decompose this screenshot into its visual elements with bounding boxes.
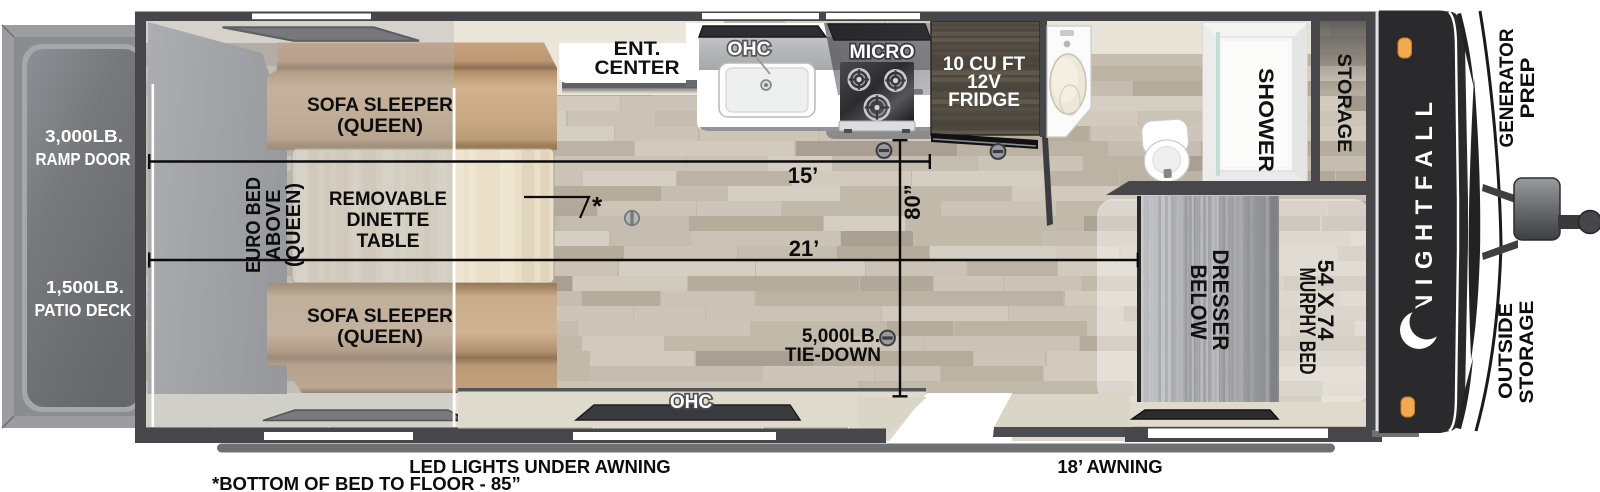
svg-text:OHC: OHC <box>670 392 713 413</box>
svg-text:*BOTTOM OF BED TO FLOOR - 85”: *BOTTOM OF BED TO FLOOR - 85” <box>212 473 521 492</box>
svg-text:21’: 21’ <box>789 236 820 261</box>
svg-text:TABLE: TABLE <box>357 231 420 252</box>
svg-text:FRIDGE: FRIDGE <box>948 90 1020 111</box>
svg-text:OUTSIDE: OUTSIDE <box>1496 303 1517 399</box>
svg-text:5,000LB.: 5,000LB. <box>802 326 880 347</box>
svg-text:SOFA SLEEPER: SOFA SLEEPER <box>307 306 453 327</box>
svg-text:DINETTE: DINETTE <box>347 210 430 231</box>
svg-text:PREP: PREP <box>1518 57 1539 118</box>
svg-text:(QUEEN): (QUEEN) <box>337 116 423 137</box>
svg-text:1,500LB.: 1,500LB. <box>46 277 124 297</box>
svg-text:*: * <box>592 191 603 221</box>
svg-text:CENTER: CENTER <box>595 57 680 79</box>
svg-text:GENERATOR: GENERATOR <box>1497 28 1518 147</box>
svg-text:REMOVABLE: REMOVABLE <box>329 189 447 210</box>
svg-text:(QUEEN): (QUEEN) <box>337 327 423 348</box>
svg-text:STORAGE: STORAGE <box>1333 54 1355 153</box>
svg-text:18’ AWNING: 18’ AWNING <box>1057 456 1162 477</box>
svg-text:3,000LB.: 3,000LB. <box>45 126 123 146</box>
svg-text:15’: 15’ <box>788 163 819 188</box>
svg-text:80”: 80” <box>900 184 925 219</box>
svg-text:ABOVE: ABOVE <box>263 190 285 261</box>
svg-text:RAMP DOOR: RAMP DOOR <box>36 149 131 169</box>
svg-text:NIGHTFALL: NIGHTFALL <box>1411 102 1438 312</box>
svg-text:(QUEEN): (QUEEN) <box>283 183 305 267</box>
svg-text:PATIO DECK: PATIO DECK <box>35 300 132 320</box>
svg-text:OHC: OHC <box>727 38 770 60</box>
svg-text:SOFA SLEEPER: SOFA SLEEPER <box>307 95 453 116</box>
svg-text:STORAGE: STORAGE <box>1517 301 1538 404</box>
svg-text:MURPHY BED: MURPHY BED <box>1295 268 1320 375</box>
svg-text:TIE-DOWN: TIE-DOWN <box>785 345 881 366</box>
svg-text:EURO BED: EURO BED <box>243 177 265 273</box>
svg-text:MICRO: MICRO <box>850 41 915 63</box>
svg-text:BELOW: BELOW <box>1186 265 1211 340</box>
svg-text:SHOWER: SHOWER <box>1254 68 1277 172</box>
